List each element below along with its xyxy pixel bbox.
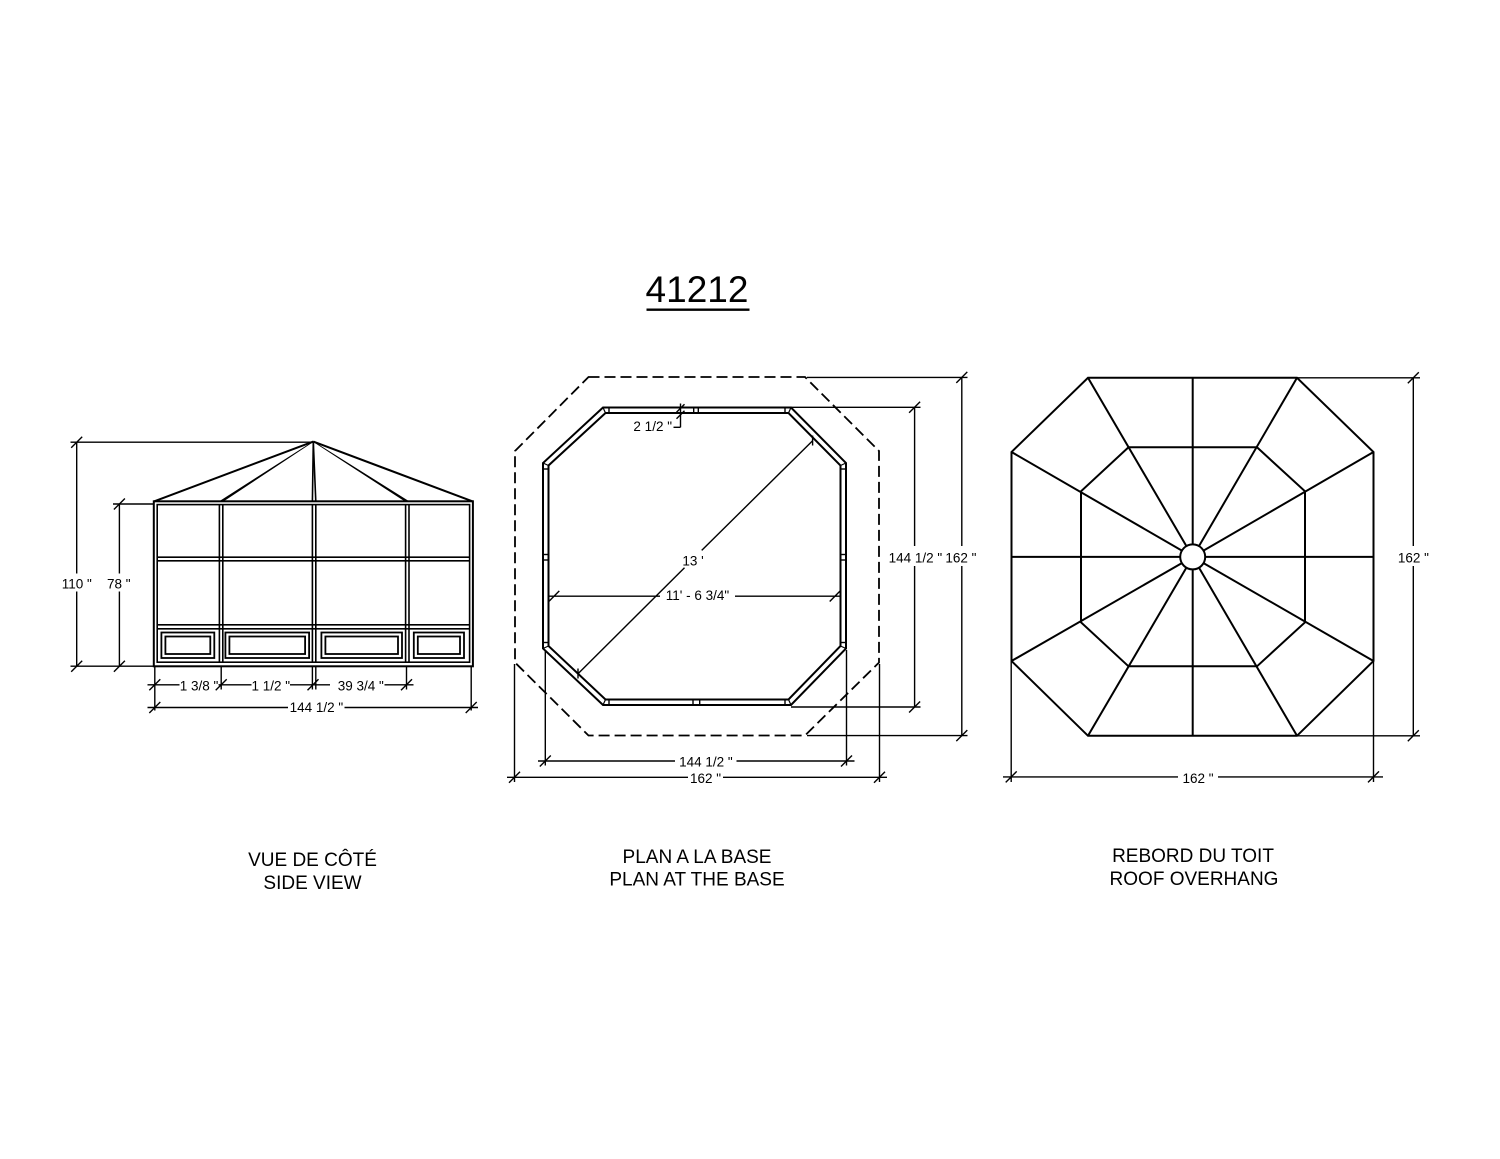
svg-text:110 ": 110 " xyxy=(62,576,92,591)
svg-text:162 ": 162 " xyxy=(1398,551,1429,566)
svg-text:11' - 6 3/4": 11' - 6 3/4" xyxy=(666,588,730,603)
svg-text:2 1/2 ": 2 1/2 " xyxy=(633,419,672,434)
svg-text:41212: 41212 xyxy=(646,269,749,310)
svg-text:PLAN AT THE BASE: PLAN AT THE BASE xyxy=(609,870,784,891)
svg-text:144 1/2 ": 144 1/2 " xyxy=(889,550,943,565)
svg-text:162 ": 162 " xyxy=(945,550,976,565)
svg-text:ROOF OVERHANG: ROOF OVERHANG xyxy=(1110,869,1279,890)
svg-text:1 1/2 ": 1 1/2 " xyxy=(252,679,291,694)
svg-text:39 3/4 ": 39 3/4 " xyxy=(338,679,384,694)
svg-text:1 3/8 ": 1 3/8 " xyxy=(180,679,219,694)
svg-text:78 ": 78 " xyxy=(107,576,131,591)
svg-text:144 1/2 ": 144 1/2 " xyxy=(290,700,344,715)
svg-text:PLAN A LA BASE: PLAN A LA BASE xyxy=(623,847,772,868)
svg-text:VUE DE CÔTÉ: VUE DE CÔTÉ xyxy=(248,849,377,871)
svg-text:162 ": 162 " xyxy=(690,771,721,786)
svg-text:162 ": 162 " xyxy=(1182,771,1213,786)
svg-text:144 1/2 ": 144 1/2 " xyxy=(679,754,733,769)
svg-text:REBORD DU TOIT: REBORD DU TOIT xyxy=(1112,846,1274,867)
svg-text:SIDE VIEW: SIDE VIEW xyxy=(263,873,361,894)
svg-text:13 ': 13 ' xyxy=(682,554,703,569)
